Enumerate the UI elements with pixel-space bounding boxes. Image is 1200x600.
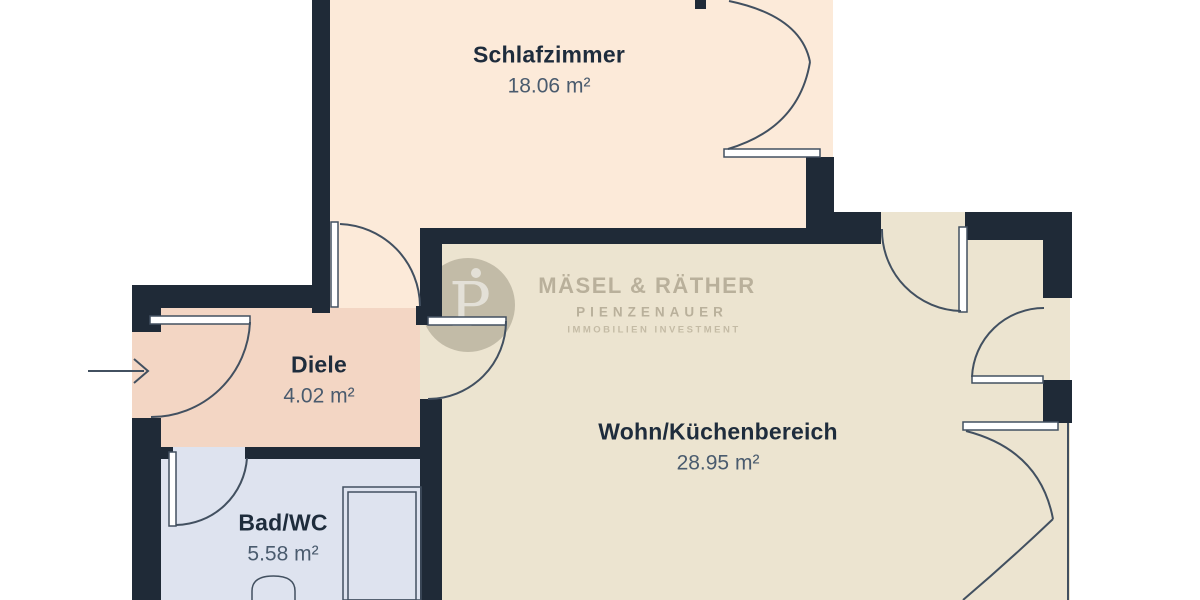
- wall-segment: [1043, 380, 1072, 423]
- wall-segment: [420, 399, 442, 600]
- floor-schlafzimmer: [330, 0, 833, 228]
- wall-segment: [132, 308, 161, 332]
- wall-segment: [312, 0, 330, 313]
- room-label-diele: Diele 4.02 m²: [283, 352, 354, 409]
- floor-bad-door-opening: [173, 447, 245, 459]
- room-label-schlafzimmer: Schlafzimmer 18.06 m²: [473, 42, 625, 99]
- wall-segment: [1043, 240, 1072, 298]
- room-name: Bad/WC: [238, 510, 327, 537]
- floor-plan: P MÄSEL & RÄTHER PIENZENAUER IMMOBILIEN …: [0, 0, 1200, 600]
- watermark-tagline: IMMOBILIEN INVESTMENT: [567, 325, 740, 336]
- room-area: 4.02 m²: [283, 385, 354, 409]
- room-label-wohn: Wohn/Küchenbereich 28.95 m²: [598, 419, 838, 476]
- watermark-monogram: P: [440, 262, 500, 348]
- wall-segment: [416, 306, 422, 325]
- watermark-monogram-dot-icon: [471, 268, 481, 278]
- room-area: 28.95 m²: [598, 452, 838, 476]
- wall-segment: [245, 447, 437, 459]
- watermark-brand: MÄSEL & RÄTHER: [538, 273, 755, 299]
- wall-segment: [132, 285, 312, 308]
- floor-entrance-opening: [132, 332, 161, 418]
- floor-schlafzimmer-corridor: [330, 228, 420, 308]
- wall-segment: [965, 212, 1072, 240]
- watermark-subtitle: PIENZENAUER: [576, 305, 728, 320]
- wall-segment: [806, 157, 834, 244]
- room-name: Wohn/Küchenbereich: [598, 419, 838, 446]
- floor-wohn-top-door-opening: [881, 212, 965, 244]
- room-name: Schlafzimmer: [473, 42, 625, 69]
- room-area: 18.06 m²: [473, 75, 625, 99]
- room-area: 5.58 m²: [238, 543, 327, 567]
- room-name: Diele: [283, 352, 354, 379]
- wall-segment: [132, 418, 161, 600]
- room-label-bad: Bad/WC 5.58 m²: [238, 510, 327, 567]
- wall-segment: [695, 0, 706, 9]
- wall-segment: [161, 447, 173, 459]
- wall-segment: [833, 212, 881, 244]
